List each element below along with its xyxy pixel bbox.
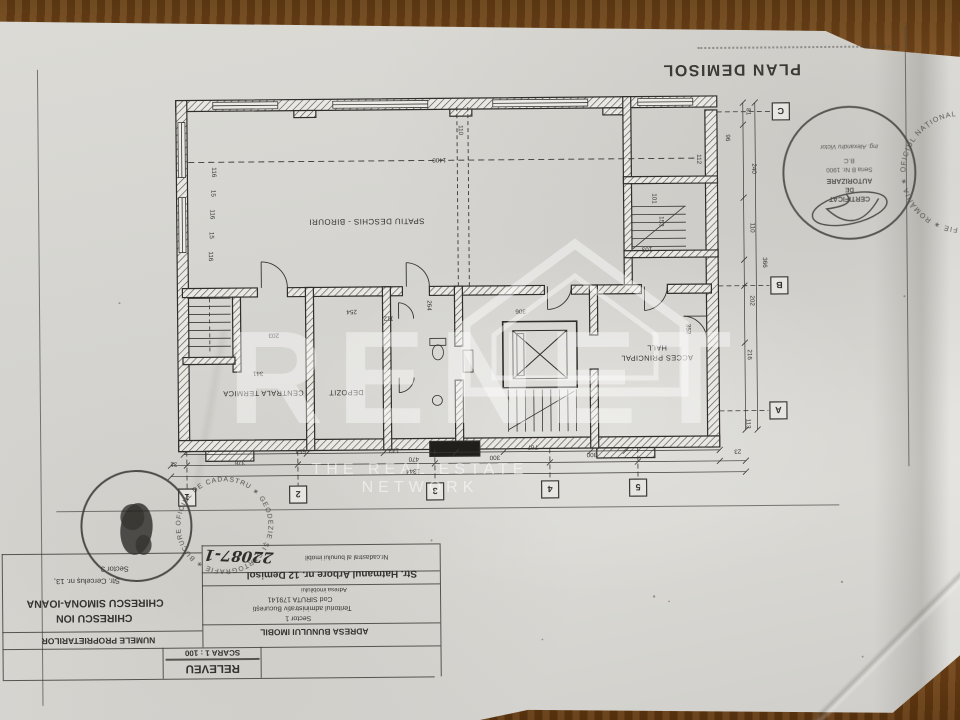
elevator-symbol [503,321,578,388]
dimension-label: 15 [208,232,215,240]
dimension-label: 103 [641,245,652,252]
dimension-label: 654 [295,447,306,454]
drawing-type-label: RELEVEU [158,661,268,675]
axis-marker-letter: B [776,280,783,290]
owners-header: NUMELE PROPRIETARILOR [13,635,183,646]
door-arcs [261,258,707,394]
cadastral-number-handwritten: 22087-1 [203,546,275,567]
dimension-label: 143 [388,447,399,454]
owner-name-1: CHIRESCU ION [19,611,169,624]
axis-marker-number: 2 [296,489,301,499]
dimension-label: 116 [207,251,214,262]
dimension-label: 767 [527,443,538,450]
address-sublabel: Adresa imobilului [264,585,384,593]
room-label-boiler: CENTRALA TERMICA [223,389,304,399]
walls [176,96,720,462]
svg-text:B.C: B.C [844,157,855,164]
property-sector: Sector 1 [258,613,338,622]
dimension-label: 153 [658,216,665,227]
dimension-label: 376 [234,459,245,466]
svg-text:ing. Alexandru Victor: ing. Alexandru Victor [819,143,878,151]
dimension-label: 15 [209,190,216,198]
axis-marker-letter: C [777,106,784,116]
scale-label: SCARA 1 : 100 [157,647,267,657]
dimension-label: 23 [734,448,742,455]
dimension-label: 101 [650,193,657,204]
dimension-label: 353 [684,324,691,335]
cadastral-number-label: Nr.cadastral al bunului imobil [262,552,432,561]
room-label-storage: DEPOZIT [329,388,364,397]
dimension-label: 202 [748,295,755,306]
photo-of-cadastral-floor-plan: SPATIU DESCHIS - BIROURI CENTRALA TERMIC… [0,0,960,720]
svg-text:AUTORIZARE: AUTORIZARE [826,177,872,184]
stamp-emblem [117,501,156,557]
svg-text:Seria B Nr. 1900: Seria B Nr. 1900 [826,166,873,173]
dimension-label: 1400 [432,156,447,163]
room-label-open-space: SPATIU DESCHIS - BIROURI [309,216,425,226]
owner-sector: Sector 3 [75,564,155,573]
dimension-label: 306 [515,307,526,314]
dimension-label: 81 [745,108,752,116]
svg-text:DE: DE [844,186,854,193]
window-symbols [178,98,694,252]
dimension-label: 112 [383,315,394,322]
room-label-hall-2: ACCES PRINCIPAL [621,353,693,363]
axis-marker-letter: A [775,405,782,415]
plan-title: PLAN DEMISOL [651,59,811,78]
dimension-label: 110 [457,125,464,136]
room-label-hall-1: HALL [647,343,667,352]
dimension-label: 110 [749,223,756,234]
address-header: ADRESA BUNULUI IMOBIL [214,626,414,637]
dimension-label: 112 [695,154,702,165]
axis-marker-number: 3 [433,486,438,496]
dimension-label: 203 [268,332,279,339]
dimension-label: 470 [408,455,419,462]
dimension-label: 96 [724,134,731,142]
siruta-code: Cod SIRUTA 179141 [230,594,370,603]
dimension-label: 300 [586,451,597,458]
dimension-label: 254 [346,308,357,315]
owner-street: Str. Cerceluș nr. 13, [22,576,152,586]
dimension-label: 341 [252,370,263,377]
stair-diagonal [508,391,574,430]
dimension-label: 116 [210,167,217,178]
dimension-label: 366 [761,257,768,268]
axis-marker-number: 5 [636,482,641,492]
owner-name-2: CHIRESCU SIMONA-IOANA [0,596,190,609]
stair-diagonal [633,206,685,248]
property-street-address: Str. Hatmanul Arbore nr. 12 Demisol [222,567,442,580]
dimension-label: 216 [746,349,753,360]
dimension-label: 264 [425,300,432,311]
administrative-territory: Teritoriul administrativ București [212,603,392,612]
axis-marker-number: 4 [548,484,553,494]
stamp-national-cadastre: OFICIUL NAȚIONAL DE CADASTRU, GEODEZIE Ș… [783,105,960,239]
dimension-label: 31 [170,460,178,467]
dimension-label: 113 [744,419,751,430]
document-sheet: SPATIU DESCHIS - BIROURI CENTRALA TERMIC… [0,0,960,720]
dimension-label: 300 [489,454,500,461]
dimension-label: 1344 [405,467,420,474]
dimension-label: 116 [208,209,215,220]
dimension-label: 240 [750,163,757,174]
bathroom-fixtures [430,338,474,405]
